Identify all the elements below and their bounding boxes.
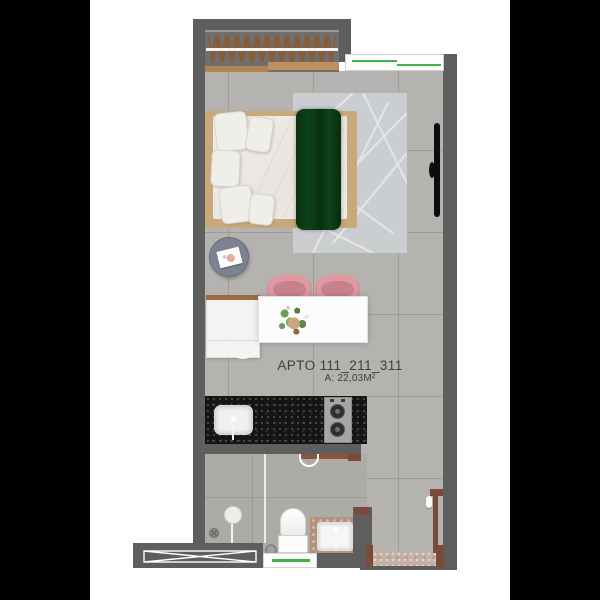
wardrobe-shelf (205, 66, 268, 72)
green-bed-throw (296, 109, 341, 230)
area-label: A: 22,03M² (250, 373, 450, 384)
window-glass (352, 60, 397, 62)
cabinet-door-line (208, 340, 258, 341)
wardrobe-shelf (268, 62, 339, 70)
entry-door-handle (426, 496, 432, 508)
pillow (210, 149, 241, 187)
entry-door-jamb (430, 489, 443, 496)
kitchen-faucet-stem (232, 422, 234, 440)
pillow (247, 193, 275, 226)
shower-arm (231, 524, 233, 543)
wall (193, 19, 205, 545)
burner (330, 404, 345, 419)
entry-door-jamb (366, 545, 373, 567)
apartment-label: APTO 111_211_311 (240, 358, 440, 373)
entry-door-leaf (433, 495, 438, 553)
cooktop-knob (341, 399, 345, 402)
bathroom-window-glass (272, 559, 310, 562)
shower-head (224, 506, 242, 524)
window-glass (397, 64, 441, 66)
entry-threshold (372, 551, 440, 566)
toilet-tank (278, 535, 308, 553)
tv-mount (429, 162, 435, 178)
wardrobe-edge (205, 30, 339, 32)
table-plant (272, 303, 314, 338)
floor-plan: APTO 111_211_311 A: 22,03M² (0, 0, 600, 600)
burner-core (335, 427, 340, 432)
window-frame (345, 54, 444, 71)
cooktop-knob (330, 399, 334, 402)
burner-core (335, 409, 340, 414)
service-shaft-hatch (143, 550, 257, 563)
burner (330, 422, 345, 437)
wall (443, 54, 457, 568)
letterbox-right (510, 0, 600, 600)
letterbox-left (0, 0, 90, 600)
cabinet-wood-edge (206, 295, 260, 300)
door-jamb (355, 507, 370, 515)
wall (193, 444, 361, 454)
floor-drain (209, 528, 219, 538)
wall (193, 19, 351, 30)
wardrobe-rod (206, 48, 338, 51)
bathroom-faucet-stem (335, 533, 337, 550)
shower-glass-partition (264, 453, 266, 543)
